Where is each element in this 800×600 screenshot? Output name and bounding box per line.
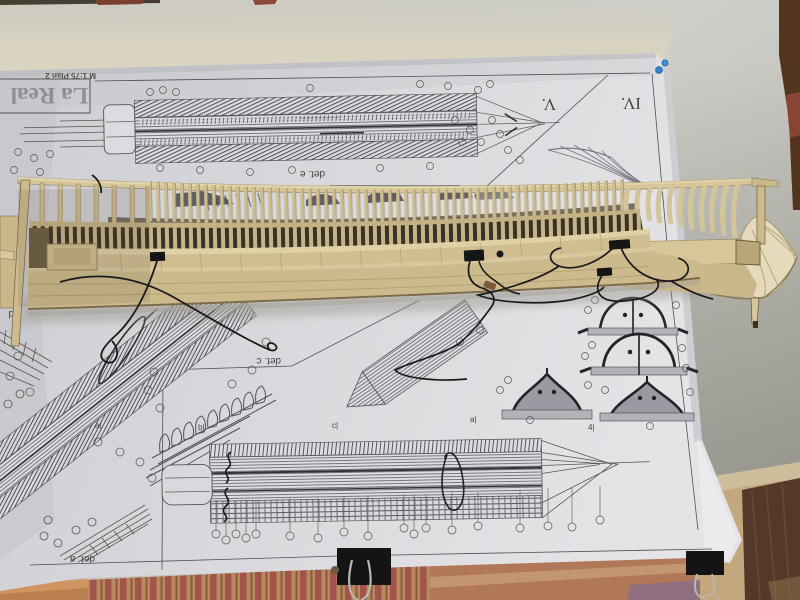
svg-text:La Real: La Real (11, 83, 88, 108)
svg-text:a|: a| (470, 415, 477, 424)
svg-text:4|: 4| (588, 423, 595, 432)
svg-text:det. c: det. c (257, 355, 281, 366)
svg-text:IV.: IV. (621, 94, 641, 113)
svg-text:M 1:75 Plan 2: M 1:75 Plan 2 (45, 71, 96, 80)
svg-text:c|: c| (332, 421, 338, 430)
svg-text:V.: V. (542, 95, 556, 114)
svg-text:det. e: det. e (300, 168, 325, 179)
svg-text:b|: b| (198, 423, 205, 432)
svg-text:a|: a| (95, 421, 102, 430)
